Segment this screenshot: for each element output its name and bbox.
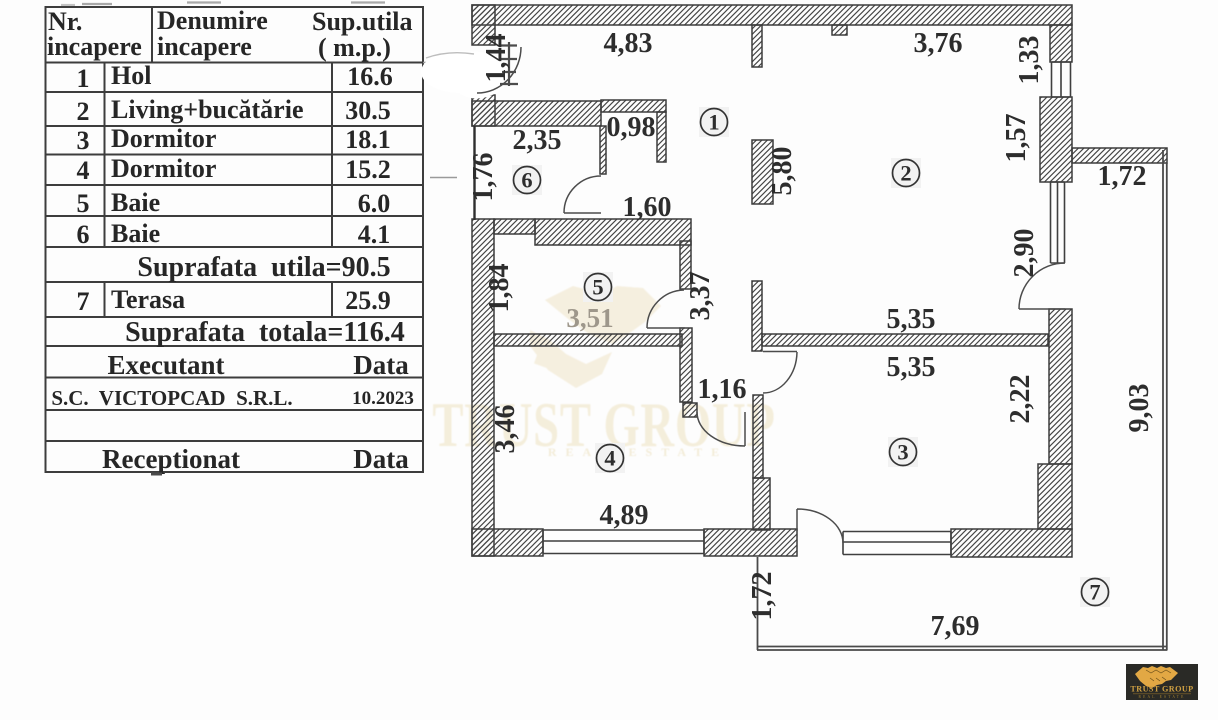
svg-text:4: 4 bbox=[77, 156, 90, 185]
svg-text:2: 2 bbox=[77, 97, 90, 126]
svg-text:1: 1 bbox=[708, 110, 719, 135]
svg-text:Data: Data bbox=[353, 444, 409, 474]
svg-text:10.2023: 10.2023 bbox=[352, 388, 414, 409]
svg-text:4.1: 4.1 bbox=[358, 220, 391, 249]
svg-text:1,76: 1,76 bbox=[468, 153, 499, 202]
svg-text:Terasa: Terasa bbox=[111, 285, 185, 314]
svg-text:REAL ESTATE: REAL ESTATE bbox=[548, 445, 728, 459]
svg-text:5,80: 5,80 bbox=[767, 147, 798, 196]
svg-text:2: 2 bbox=[900, 161, 911, 186]
svg-text:Hol: Hol bbox=[111, 61, 151, 90]
svg-text:incapere: incapere bbox=[157, 32, 252, 61]
svg-text:3,37: 3,37 bbox=[685, 272, 716, 321]
svg-text:1,57: 1,57 bbox=[1001, 114, 1032, 163]
svg-text:5,35: 5,35 bbox=[887, 352, 936, 383]
svg-text:Data: Data bbox=[353, 350, 409, 380]
svg-text:3: 3 bbox=[897, 440, 908, 465]
svg-text:REAL ESTATE: REAL ESTATE bbox=[1138, 695, 1185, 699]
svg-text:15.2: 15.2 bbox=[345, 155, 391, 184]
svg-text:7: 7 bbox=[77, 287, 90, 316]
svg-text:3,76: 3,76 bbox=[914, 28, 963, 59]
svg-text:Suprafata utila=90.5: Suprafata utila=90.5 bbox=[137, 252, 390, 283]
svg-text:4,89: 4,89 bbox=[600, 500, 649, 531]
svg-text:2,35: 2,35 bbox=[513, 125, 562, 156]
svg-text:1,16: 1,16 bbox=[698, 374, 747, 405]
svg-text:1,84: 1,84 bbox=[484, 264, 515, 313]
svg-text:Dormitor: Dormitor bbox=[111, 154, 216, 183]
svg-text:1,72: 1,72 bbox=[1098, 161, 1147, 192]
svg-text:5: 5 bbox=[77, 189, 90, 218]
svg-text:7,69: 7,69 bbox=[931, 611, 980, 642]
svg-text:6.0: 6.0 bbox=[358, 189, 391, 218]
svg-text:3,46: 3,46 bbox=[490, 405, 521, 454]
svg-text:0,98: 0,98 bbox=[607, 112, 656, 143]
svg-text:4: 4 bbox=[604, 446, 615, 471]
svg-text:incapere: incapere bbox=[47, 32, 142, 61]
svg-text:1: 1 bbox=[77, 64, 90, 93]
svg-text:Executant: Executant bbox=[108, 350, 225, 380]
svg-text:S.C. VICTOPCAD S.R.L.: S.C. VICTOPCAD S.R.L. bbox=[51, 386, 292, 410]
svg-text:Living+bucătărie: Living+bucătărie bbox=[111, 95, 304, 124]
svg-text:Receptionat: Receptionat bbox=[102, 444, 240, 474]
svg-text:Suprafata totala=116.4: Suprafata totala=116.4 bbox=[125, 317, 405, 348]
svg-text:TRUST GROUP: TRUST GROUP bbox=[1130, 685, 1193, 694]
svg-text:Baie: Baie bbox=[111, 219, 160, 248]
svg-text:3,51: 3,51 bbox=[566, 303, 613, 333]
svg-text:30.5: 30.5 bbox=[345, 96, 391, 125]
svg-text:Dormitor: Dormitor bbox=[111, 124, 216, 153]
svg-text:25.9: 25.9 bbox=[345, 286, 391, 315]
svg-text:16.6: 16.6 bbox=[347, 62, 393, 91]
svg-text:9,03: 9,03 bbox=[1124, 384, 1155, 433]
svg-text:2,22: 2,22 bbox=[1005, 375, 1036, 424]
svg-text:7: 7 bbox=[1089, 580, 1100, 605]
svg-text:Baie: Baie bbox=[111, 188, 160, 217]
svg-text:1,44: 1,44 bbox=[481, 34, 512, 83]
svg-text:6: 6 bbox=[521, 168, 532, 193]
svg-text:Denumire: Denumire bbox=[157, 6, 268, 35]
svg-text:18.1: 18.1 bbox=[345, 125, 391, 154]
svg-text:5,35: 5,35 bbox=[887, 304, 936, 335]
svg-text:3: 3 bbox=[77, 126, 90, 155]
svg-text:6: 6 bbox=[77, 220, 90, 249]
svg-text:1,60: 1,60 bbox=[623, 192, 672, 223]
svg-text:4,83: 4,83 bbox=[604, 28, 653, 59]
svg-text:( m.p.): ( m.p.) bbox=[318, 33, 391, 62]
svg-text:Sup.utila: Sup.utila bbox=[312, 7, 412, 36]
svg-text:1,33: 1,33 bbox=[1014, 36, 1045, 85]
svg-text:1,72: 1,72 bbox=[747, 572, 778, 621]
svg-text:5: 5 bbox=[592, 275, 603, 300]
svg-text:2,90: 2,90 bbox=[1009, 229, 1040, 278]
